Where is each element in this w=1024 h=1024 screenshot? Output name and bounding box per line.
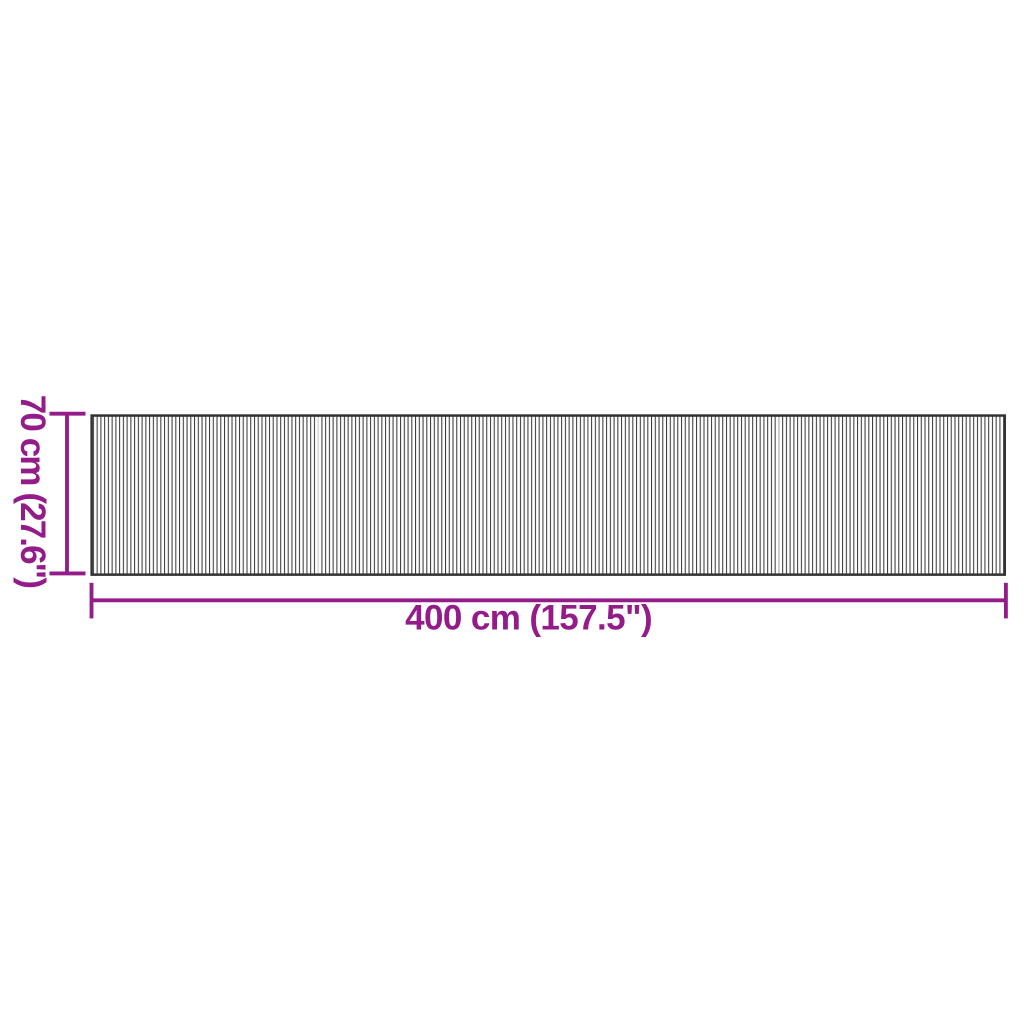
svg-text:400 cm (157.5"): 400 cm (157.5") xyxy=(405,599,653,638)
svg-text:70 cm (27.6"): 70 cm (27.6") xyxy=(13,395,52,589)
